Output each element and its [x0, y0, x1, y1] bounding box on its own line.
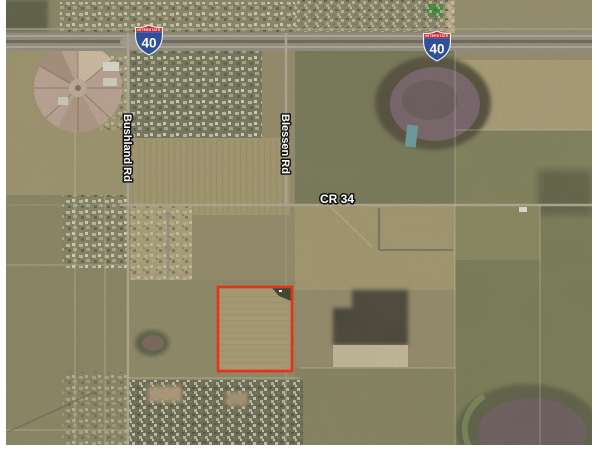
road-label-cr34: CR 34 [320, 192, 354, 206]
road-label-bushland: Bushland Rd [121, 114, 133, 182]
shield-route-number: 40 [429, 42, 444, 57]
satellite-image: Bushland Rd Blessen Rd CR 34 INTERSTATE … [0, 0, 600, 450]
shield-route-number: 40 [141, 36, 156, 51]
aerial-map: Bushland Rd Blessen Rd CR 34 INTERSTATE … [0, 0, 600, 450]
road-label-blessen: Blessen Rd [279, 114, 291, 174]
terrain-grain [0, 0, 600, 450]
shield-banner-text: INTERSTATE [425, 34, 449, 38]
shield-banner-text: INTERSTATE [137, 28, 161, 32]
highlighted-parcel [215, 287, 295, 371]
